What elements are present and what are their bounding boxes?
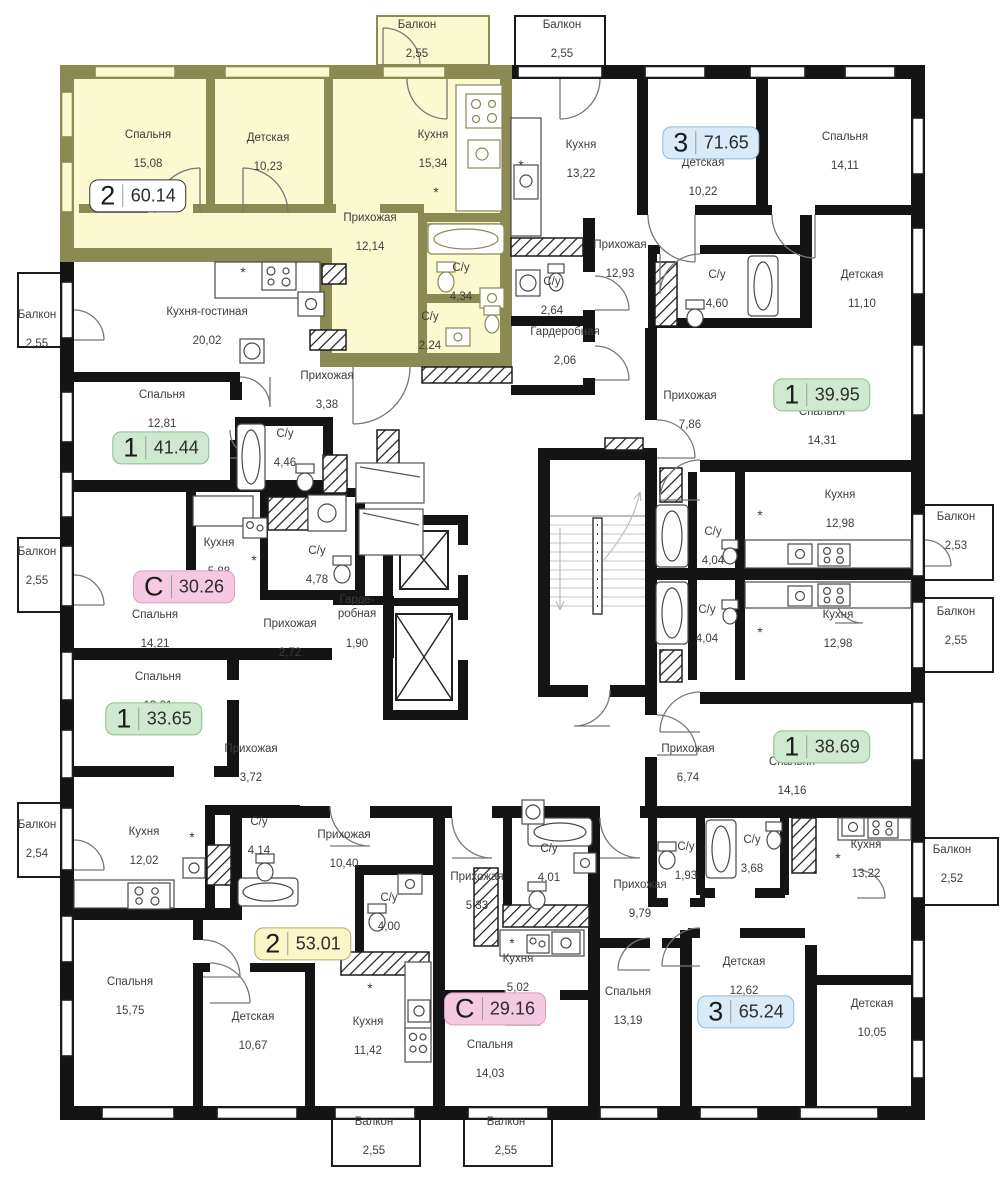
apartment-area: 39.95 bbox=[815, 384, 860, 405]
apartment-type: 1 bbox=[784, 380, 799, 408]
badge-divider bbox=[145, 436, 146, 459]
apartment-badge: 3 71.65 bbox=[662, 126, 759, 159]
apartment-area: 38.69 bbox=[815, 736, 860, 757]
apartment-type: 1 bbox=[116, 704, 131, 732]
apartment-badge: 1 38.69 bbox=[773, 730, 870, 763]
apartment-type: 1 bbox=[784, 732, 799, 760]
apartment-badge: 1 41.44 bbox=[112, 431, 209, 464]
apartment-area: 29.16 bbox=[490, 998, 535, 1019]
badge-divider bbox=[806, 383, 807, 406]
badge-divider bbox=[730, 1000, 731, 1023]
badge-divider bbox=[138, 707, 139, 730]
apartment-badge: 1 39.95 bbox=[773, 378, 870, 411]
badge-divider bbox=[171, 575, 172, 598]
apartment-badge: С 30.26 bbox=[133, 570, 235, 603]
apartment-type: С bbox=[455, 994, 475, 1022]
badge-divider bbox=[122, 184, 123, 207]
apartment-area: 30.26 bbox=[179, 576, 224, 597]
corridor-closets bbox=[356, 463, 424, 555]
apartment-area: 53.01 bbox=[296, 933, 341, 954]
elevator-shafts bbox=[396, 531, 452, 700]
badge-divider bbox=[695, 131, 696, 154]
apartment-area: 65.24 bbox=[739, 1001, 784, 1022]
apartment-badge: 2 60.14 bbox=[89, 179, 186, 212]
apartment-type: 2 bbox=[265, 929, 280, 957]
apartment-badge: 1 33.65 bbox=[105, 702, 202, 735]
badge-divider bbox=[482, 997, 483, 1020]
apartment-type: 3 bbox=[708, 997, 723, 1025]
apartment-area: 71.65 bbox=[704, 132, 749, 153]
apartment-badge: С 29.16 bbox=[444, 992, 546, 1025]
apartment-type: 1 bbox=[123, 433, 138, 461]
apartment-type: 2 bbox=[100, 181, 115, 209]
floor-plan: Балкон 2,55 Спальня 15,08 Детская 10,23 … bbox=[0, 0, 1000, 1186]
staircase bbox=[550, 460, 645, 685]
badge-divider bbox=[287, 932, 288, 955]
apartment-badge: 3 65.24 bbox=[697, 995, 794, 1028]
apartment-area: 60.14 bbox=[131, 185, 176, 206]
apartment-area: 33.65 bbox=[147, 708, 192, 729]
apartment-type: 3 bbox=[673, 128, 688, 156]
apartment-area: 41.44 bbox=[154, 437, 199, 458]
badge-divider bbox=[806, 735, 807, 758]
apartment-badge: 2 53.01 bbox=[254, 927, 351, 960]
apartment-type: С bbox=[144, 572, 164, 600]
